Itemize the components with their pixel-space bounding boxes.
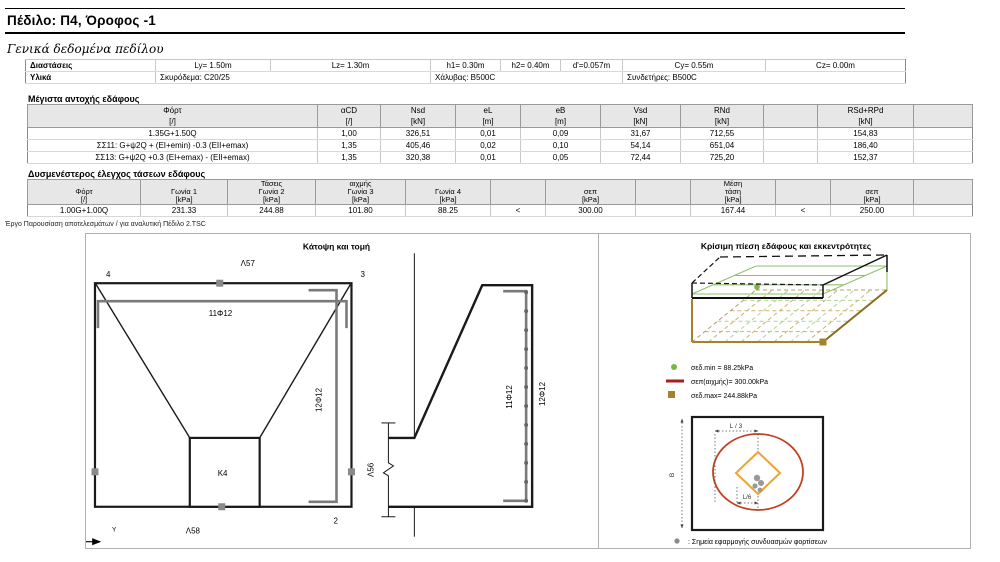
col-header-empty: [914, 105, 973, 128]
plan-bars-y-label: 11Φ12: [209, 309, 233, 318]
row-label: Υλικά: [26, 72, 156, 84]
drawings-container: Κάτοψη και τομή K4 Λ57 Λ58 Λ64 4 3 1: [85, 233, 971, 549]
cell: <: [776, 205, 831, 217]
cell: Cy= 0.55m: [623, 60, 766, 72]
cell: 300.00: [546, 205, 636, 217]
materials-row: Υλικά Σκυρόδεμα: C20/25 Χάλυβας: B500C Σ…: [26, 72, 906, 84]
cell: 186,40: [818, 140, 914, 152]
cell: 0,09: [521, 128, 601, 140]
col-header: RNd[kN]: [681, 105, 764, 128]
cell: Cz= 0.00m: [766, 60, 906, 72]
col-header-empty: [914, 180, 973, 205]
cell: 154,83: [818, 128, 914, 140]
cell: ΣΣ13: G+ψ2Q +0.3 (EI+emax) - (EII+emax): [28, 152, 318, 164]
cell-empty: [764, 140, 818, 152]
col-header: σεπ[kPa]: [546, 180, 636, 205]
col-header: RSd+RPd[kN]: [818, 105, 914, 128]
cell: 712,55: [681, 128, 764, 140]
corner-2: 2: [334, 517, 339, 526]
cell-empty: [636, 205, 691, 217]
cell: h1= 0.30m: [431, 60, 501, 72]
section-bars-z-label: 12Φ12: [538, 381, 547, 406]
cell: 651,04: [681, 140, 764, 152]
cell: 326,51: [381, 128, 456, 140]
divider-top: [5, 8, 905, 9]
cell-empty: [764, 128, 818, 140]
legend-min-icon: [671, 364, 677, 370]
legend-max-icon: [668, 391, 675, 398]
col-header: Γωνία 4[kPa]: [406, 180, 491, 205]
pressure-3d-box: [692, 255, 887, 346]
cell: d'=0.057m: [561, 60, 623, 72]
col-header: Φόρτ[/]: [28, 180, 141, 205]
corner-4: 4: [106, 270, 111, 279]
stress-check-table: Φόρτ[/] Γωνία 1[kPa] ΤάσειςΓωνία 2[kPa] …: [27, 179, 973, 217]
cell: 72,44: [601, 152, 681, 164]
cell: 1,35: [318, 140, 381, 152]
col-header: eL[m]: [456, 105, 521, 128]
cell: 1.00G+1.00Q: [28, 205, 141, 217]
row-label: Διαστάσεις: [26, 60, 156, 72]
project-note: Έργο Παρουσίαση αποτελεσμάτων / για αναλ…: [5, 221, 206, 228]
cell: 1.35G+1.50Q: [28, 128, 318, 140]
load-spread-line: [96, 284, 190, 438]
col-header: Nsd[kN]: [381, 105, 456, 128]
general-data-table: Διαστάσεις Ly= 1.50m Lz= 1.30m h1= 0.30m…: [25, 59, 906, 84]
cell-empty: [914, 140, 973, 152]
cell: 88.25: [406, 205, 491, 217]
table-row: 1.35G+1.50Q 1,00 326,51 0,01 0,09 31,67 …: [28, 128, 973, 140]
axis-marker: [216, 280, 223, 287]
axis-marker: [348, 468, 355, 475]
cell: Σκυρόδεμα: C20/25: [156, 72, 431, 84]
pressure-legend: σεδ.min = 88.25kPa σεπ(αιχμής)= 300.00kP…: [666, 364, 768, 400]
axis-marker: [218, 503, 225, 510]
cell: h2= 0.40m: [501, 60, 561, 72]
cell: 167.44: [691, 205, 776, 217]
load-point-icon: [674, 538, 679, 543]
legend-min-label: σεδ.min = 88.25kPa: [691, 365, 753, 372]
cell: 0,05: [521, 152, 601, 164]
pressure-panel-title: Κρίσιμη πίεση εδάφους και εκκεντρότητες: [701, 241, 872, 251]
section-max-heading: Μέγιστα αντοχής εδάφους: [28, 94, 139, 104]
max-pressure-marker: [820, 339, 827, 346]
footing-section: Λ56 11Φ12 12Φ12: [366, 253, 547, 536]
max-strength-table: Φόρτ[/] αCD[/] Nsd[kN] eL[m] eB[m] Vsd[k…: [27, 104, 973, 164]
cell-empty: [914, 128, 973, 140]
cell: 1,00: [318, 128, 381, 140]
eccentricity-diagram: L / 3 L/6 B : Σημεία εφαρμογής συνδυασμώ…: [669, 417, 827, 546]
cell: 231.33: [141, 205, 228, 217]
footing-plan: K4 Λ57 Λ58 Λ64 4 3 1 2 11Φ12 12Φ12 z Y: [86, 259, 365, 541]
dim-b-label: B: [669, 473, 676, 477]
legend-max-label: σεδ.max= 244.88kPa: [691, 393, 757, 400]
page-title: Πέδιλο: Π4, Όροφος -1: [7, 13, 156, 28]
col-header: Vsd[kN]: [601, 105, 681, 128]
cell: 152,37: [818, 152, 914, 164]
cell: 54,14: [601, 140, 681, 152]
cell: 244.88: [228, 205, 316, 217]
cell: 0,01: [456, 128, 521, 140]
col-header: ΤάσειςΓωνία 2[kPa]: [228, 180, 316, 205]
plan-section-drawing: Κάτοψη και τομή K4 Λ57 Λ58 Λ64 4 3 1: [86, 234, 599, 548]
dim-l6-label: L/6: [743, 495, 752, 501]
section-general-heading: Γενικά δεδομένα πεδίλου: [7, 42, 164, 56]
cell: 0,10: [521, 140, 601, 152]
cell: Ly= 1.50m: [156, 60, 271, 72]
col-header-empty: [636, 180, 691, 205]
divider-title: [5, 32, 905, 34]
bar-label-bottom: Λ58: [186, 527, 201, 536]
col-header: σεπ[kPa]: [831, 180, 914, 205]
cell: 1,35: [318, 152, 381, 164]
col-header: Φόρτ[/]: [28, 105, 318, 128]
cell: 405,46: [381, 140, 456, 152]
col-header-empty: [776, 180, 831, 205]
legend-peak-label: σεπ(αιχμής)= 300.00kPa: [691, 379, 768, 386]
load-points-note: : Σημεία εφαρμογής συνδυασμών φορτίσεων: [688, 538, 827, 546]
col-header: Μέσητάση[kPa]: [691, 180, 776, 205]
table-row: ΣΣ13: G+ψ2Q +0.3 (EI+emax) - (EII+emax) …: [28, 152, 973, 164]
min-pressure-marker: [754, 284, 760, 290]
table-row: ΣΣ11: G+ψ2Q + (EI+emin) -0.3 (EII+emax) …: [28, 140, 973, 152]
cell-empty: [914, 205, 973, 217]
col-header: αCD[/]: [318, 105, 381, 128]
col-header: Γωνία 1[kPa]: [141, 180, 228, 205]
section-stress-heading: Δυσμενέστερος έλεγχος τάσεων εδάφους: [28, 169, 205, 179]
cell: ΣΣ11: G+ψ2Q + (EI+emin) -0.3 (EII+emax): [28, 140, 318, 152]
cell: 0,02: [456, 140, 521, 152]
cell-empty: [914, 152, 973, 164]
cell: 101.80: [316, 205, 406, 217]
col-header: eB[m]: [521, 105, 601, 128]
col-header-empty: [491, 180, 546, 205]
plan-bars-z-label: 12Φ12: [315, 387, 324, 412]
cell: Χάλυβας: B500C: [431, 72, 623, 84]
corner-3: 3: [360, 270, 365, 279]
table-row: 1.00G+1.00Q 231.33 244.88 101.80 88.25 <…: [28, 205, 973, 217]
header-row: Φόρτ[/] αCD[/] Nsd[kN] eL[m] eB[m] Vsd[k…: [28, 105, 973, 128]
dim-l3-label: L / 3: [730, 423, 743, 430]
cell: 320,38: [381, 152, 456, 164]
bar-label-top: Λ57: [241, 259, 256, 268]
cell: 250.00: [831, 205, 914, 217]
col-header-empty: [764, 105, 818, 128]
dimensions-row: Διαστάσεις Ly= 1.50m Lz= 1.30m h1= 0.30m…: [26, 60, 906, 72]
section-bars-y-label: 11Φ12: [505, 385, 514, 409]
cell: 31,67: [601, 128, 681, 140]
cell: 725,20: [681, 152, 764, 164]
col-header: αιχμήςΓωνία 3[kPa]: [316, 180, 406, 205]
report-page: Πέδιλο: Π4, Όροφος -1 Γενικά δεδομένα πε…: [0, 0, 1000, 562]
axis-y-label: Y: [112, 527, 117, 534]
cell: 0,01: [456, 152, 521, 164]
cell: Lz= 1.30m: [271, 60, 431, 72]
column-label: K4: [218, 469, 228, 478]
section-bar-label: Λ56: [366, 462, 375, 477]
header-row: Φόρτ[/] Γωνία 1[kPa] ΤάσειςΓωνία 2[kPa] …: [28, 180, 973, 205]
plan-panel-title: Κάτοψη και τομή: [303, 241, 370, 251]
axis-marker: [91, 468, 98, 475]
peak-pressure-slab: [692, 255, 887, 298]
cell-empty: [764, 152, 818, 164]
cell: Συνδετήρες: B500C: [623, 72, 906, 84]
cell: <: [491, 205, 546, 217]
pressure-drawing: Κρίσιμη πίεση εδάφους και εκκεντρότητες: [600, 234, 970, 548]
